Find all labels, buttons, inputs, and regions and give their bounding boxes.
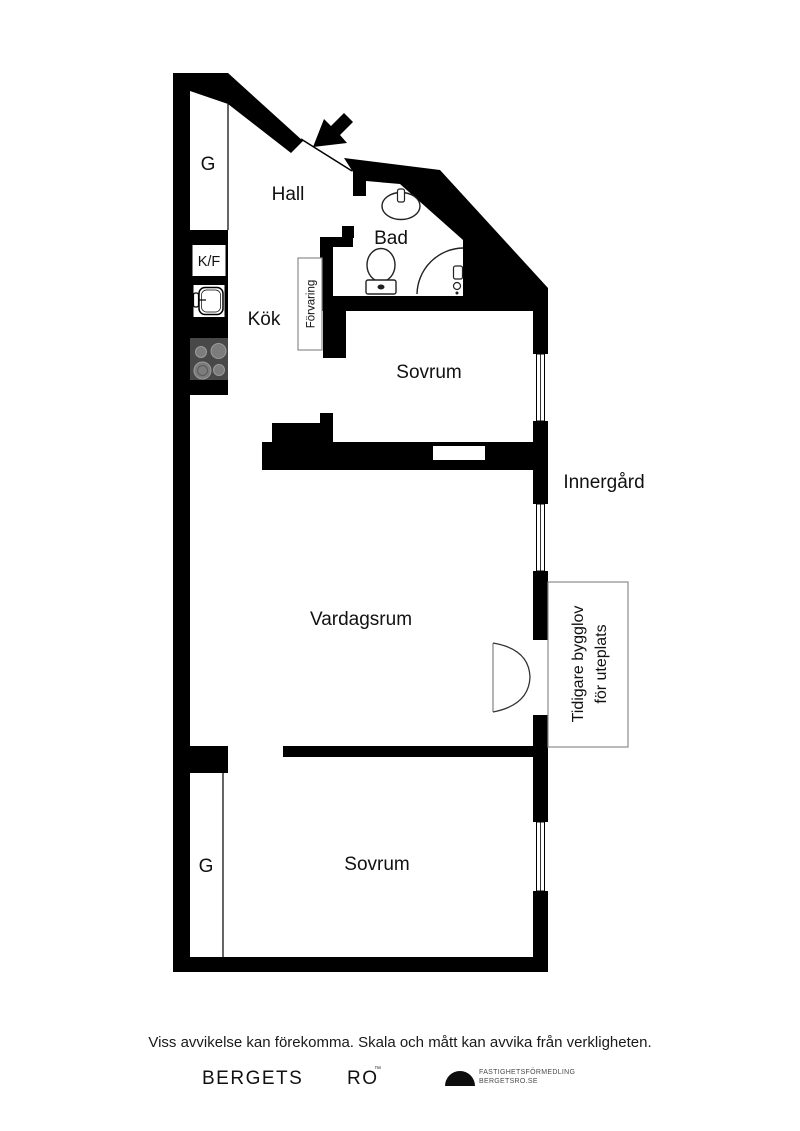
- shower-mixer: [454, 266, 463, 279]
- room-label-sovrum-top: Sovrum: [396, 362, 461, 383]
- room-label-innergard: Innergård: [563, 472, 644, 493]
- window-sovrum-bottom: [533, 818, 548, 895]
- disclaimer-text: Viss avvikelse kan förekomma. Skala och …: [0, 1034, 800, 1051]
- uteplats-note-box: Tidigare bygglov för uteplats: [548, 582, 628, 747]
- window-cap: [533, 350, 548, 354]
- toilet-icon: [366, 249, 396, 295]
- room-label-vardagsrum: Vardagsrum: [310, 609, 412, 630]
- forvaring-box: Förvaring: [298, 258, 322, 350]
- wall-right-3: [533, 575, 548, 640]
- window-cap: [533, 891, 548, 895]
- burner: [214, 365, 225, 376]
- stove-icon: [190, 338, 228, 380]
- door-opening: [493, 640, 548, 715]
- wall-right-2: [533, 425, 548, 500]
- wall-bathroom-entry-stub: [320, 237, 353, 247]
- wall-right-5: [533, 895, 548, 972]
- window-vardagsrum: [533, 500, 548, 575]
- shower-drain: [454, 283, 461, 290]
- brand-bergets: BERGETS: [202, 1068, 303, 1090]
- wall-step-block: [272, 423, 333, 442]
- window-cap: [533, 500, 548, 504]
- burner: [194, 362, 211, 379]
- shower-detail: [456, 292, 459, 295]
- floorplan-svg: Förvaring Tidigare bygglov för uteplats …: [0, 0, 800, 1131]
- room-label-hall: Hall: [272, 184, 305, 205]
- shower-icon: [417, 248, 463, 295]
- window-cap: [533, 571, 548, 575]
- agency-line1: FASTIGHETSFÖRMEDLING: [479, 1069, 575, 1078]
- wall-kok-sovrum-divider: [323, 311, 346, 358]
- burner: [211, 344, 226, 359]
- entrance-arrow-icon: [313, 113, 353, 147]
- burner: [196, 347, 207, 358]
- wall-right-upper: [533, 295, 548, 352]
- french-door: [493, 640, 548, 715]
- washbasin-tap: [398, 189, 405, 202]
- forvaring-label: Förvaring: [306, 280, 318, 329]
- floorplan-page: Förvaring Tidigare bygglov för uteplats …: [0, 0, 800, 1131]
- agency-name-block: FASTIGHETSFÖRMEDLING BERGETSRO.SE: [479, 1069, 575, 1086]
- wall-top-left-diagonal: [173, 73, 303, 153]
- wall-hall-vardagsrum: [262, 442, 533, 470]
- toilet-bowl: [367, 249, 395, 282]
- kitchen-sink-icon: [193, 284, 226, 318]
- room-label-bad: Bad: [374, 228, 408, 249]
- sink-faucet: [194, 293, 199, 307]
- agency-line2: BERGETSRO.SE: [479, 1078, 575, 1087]
- wall-sovrum2-left-block: [173, 746, 228, 773]
- room-label-kf: K/F: [198, 254, 221, 270]
- room-label-closet-top: G: [201, 154, 216, 175]
- uteplats-note-line1: Tidigare bygglov: [570, 606, 587, 723]
- trademark-symbol: ™: [374, 1066, 381, 1073]
- wall-left: [173, 73, 190, 972]
- wall-right-4: [533, 715, 548, 818]
- room-label-kok: Kök: [248, 309, 281, 330]
- wall-niche-notch: [433, 446, 485, 460]
- window-cap: [533, 818, 548, 822]
- room-label-sovrum-bottom: Sovrum: [344, 854, 409, 875]
- room-label-closet-bottom: G: [199, 856, 214, 877]
- uteplats-note-line2: för uteplats: [593, 624, 610, 703]
- wall-sovrum2-top: [283, 746, 533, 757]
- wall-bathroom-door-jamb: [342, 226, 354, 238]
- toilet-button: [378, 285, 385, 290]
- window-sovrum-top: [533, 350, 548, 425]
- wall-bottom: [173, 957, 548, 972]
- window-cap: [533, 421, 548, 425]
- uteplats-outline: [548, 582, 628, 747]
- wall-bathroom-floor: [320, 296, 533, 311]
